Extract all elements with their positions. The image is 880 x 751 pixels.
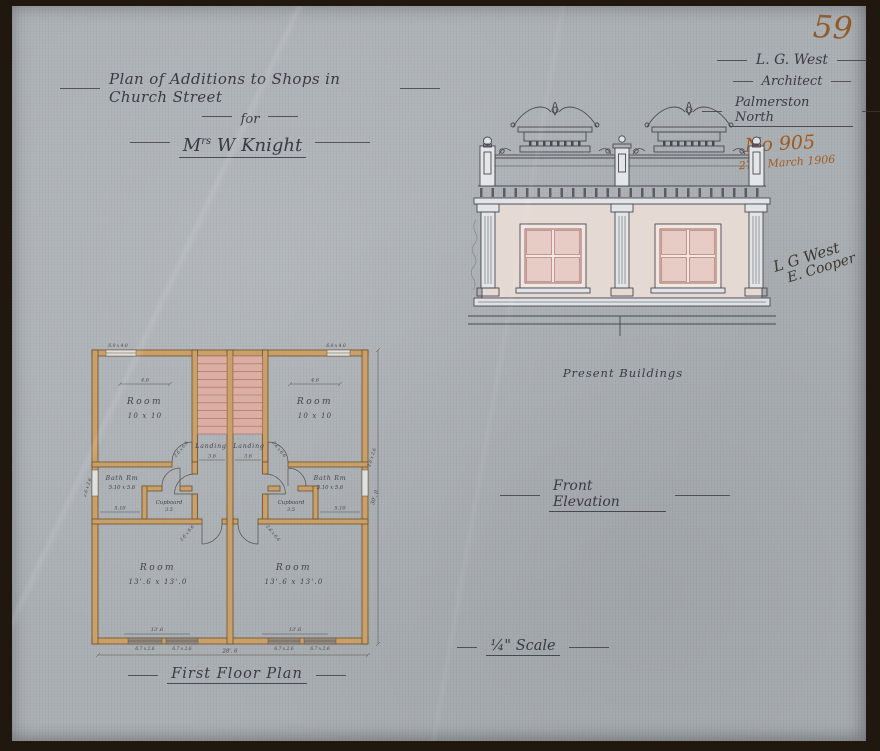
dim-side-window: 2.6 x 2.6 — [367, 448, 378, 469]
rule-line — [268, 116, 298, 117]
dim-window-bottom: 6.7 x 2.6 — [172, 647, 191, 652]
client-name-sup: rs — [201, 136, 211, 147]
room-size: 13'.6 x 13'.0 — [264, 578, 323, 586]
dim-door: 2.6 x 6.6 — [179, 525, 196, 544]
dim-overall-width: 28'. 6 — [222, 649, 239, 655]
window-left — [516, 224, 590, 293]
rule-line — [733, 81, 753, 82]
page-number: 59 — [812, 9, 853, 47]
plan-caption: First Floor Plan — [112, 666, 362, 684]
rule-line — [202, 116, 232, 117]
handwritten-vertical-note — [471, 220, 477, 290]
scale-caption-text: ¼" Scale — [486, 638, 559, 656]
rule-line — [128, 675, 158, 676]
dim-window-bottom: 6.7 x 2.6 — [310, 647, 329, 652]
rule-line — [675, 495, 730, 496]
room-label: Room — [139, 563, 176, 573]
dim-door: 2.6 x 6.6 — [264, 524, 281, 543]
bath-label: Bath Rm — [105, 475, 139, 482]
dim-window-top: 6.0 x 4.0 — [326, 344, 345, 349]
room-label: Room — [275, 563, 312, 573]
rule-line — [569, 647, 609, 648]
door-swings — [162, 442, 306, 544]
bath-size: 5.10 x 5.6 — [317, 485, 344, 491]
rule-line — [717, 60, 747, 61]
room-size: 13'.6 x 13'.0 — [128, 578, 187, 586]
dim-window-top: 6.0 x 4.0 — [108, 344, 127, 349]
scale-caption: ¼" Scale — [448, 638, 618, 656]
rule-line — [400, 88, 440, 89]
rule-line — [831, 81, 851, 82]
rule-line — [60, 88, 100, 89]
cupboard-size: 3.5 — [165, 507, 173, 513]
client-name-part: W Knight — [211, 135, 302, 156]
present-buildings-note: Present Buildings — [548, 366, 698, 380]
plan-walls — [92, 350, 368, 644]
client-name-part: M — [183, 135, 201, 156]
rule-line — [500, 495, 540, 496]
rule-line — [316, 675, 346, 676]
landing-label: Landing — [194, 443, 226, 450]
title-for: for — [241, 112, 260, 127]
blueprint-paper: 59 Plan of Additions to Shops in Church … — [12, 6, 866, 741]
client-name: Mrs W Knight — [179, 135, 306, 158]
pediment-right — [645, 102, 733, 152]
title-block: Plan of Additions to Shops in Church Str… — [60, 70, 440, 158]
room-label: Room — [126, 397, 163, 407]
window-right — [651, 224, 725, 293]
rule-line — [862, 111, 880, 112]
dim-landing: 3.6 — [244, 454, 253, 460]
pediment-left — [511, 102, 599, 152]
dim-door: 2.6 x 6.6 — [270, 440, 287, 459]
dim-bath: 5.10 — [114, 506, 126, 512]
room-size: 10 x 10 — [298, 412, 333, 420]
rule-line — [315, 142, 370, 143]
drawing-title: Plan of Additions to Shops in Church Str… — [109, 70, 391, 106]
landing-label: Landing — [232, 443, 264, 450]
dim-window-bottom: 6.7 x 2.6 — [274, 647, 293, 652]
dim-top-room: 4.6 — [140, 378, 150, 384]
room-size: 10 x 10 — [128, 412, 163, 420]
room-label: Room — [296, 397, 333, 407]
first-floor-plan-drawing: Room 10 x 10 Room 10 x 10 Landing Landin… — [84, 338, 384, 662]
dim-landing: 3.6 — [208, 454, 217, 460]
dim-door: 2.6 x 6.6 — [173, 441, 190, 460]
signature-block: L G West E. Cooper — [771, 235, 857, 289]
dim-bottom-room: 13'.6 — [151, 627, 164, 633]
elevation-caption: Front Elevation — [500, 478, 730, 512]
rule-line — [457, 647, 477, 648]
elevation-caption-text: Front Elevation — [549, 478, 666, 512]
rule-line — [130, 142, 170, 143]
parapet-piers — [480, 136, 764, 186]
dim-window-bottom: 6.7 x 2.6 — [135, 647, 154, 652]
dim-overall-height: 30'. 0 — [370, 489, 381, 506]
dim-bath: 5.10 — [334, 506, 346, 512]
rule-line — [837, 60, 867, 61]
cupboard-label: Cupboard — [278, 500, 305, 506]
front-elevation-drawing — [468, 100, 776, 336]
cupboard-label: Cupboard — [156, 500, 183, 506]
architect-name: L. G. West — [756, 52, 828, 68]
cupboard-size: 3.5 — [287, 507, 295, 513]
architect-role: Architect — [762, 74, 823, 89]
dim-top-room: 4.6 — [310, 378, 320, 384]
bath-label: Bath Rm — [313, 475, 347, 482]
dim-bottom-room: 13'.6 — [289, 627, 302, 633]
bath-size: 5.10 x 5.6 — [109, 485, 136, 491]
drawing-scan: { "page_number": "59", "title_block": { … — [0, 0, 880, 751]
plan-caption-text: First Floor Plan — [167, 666, 307, 684]
